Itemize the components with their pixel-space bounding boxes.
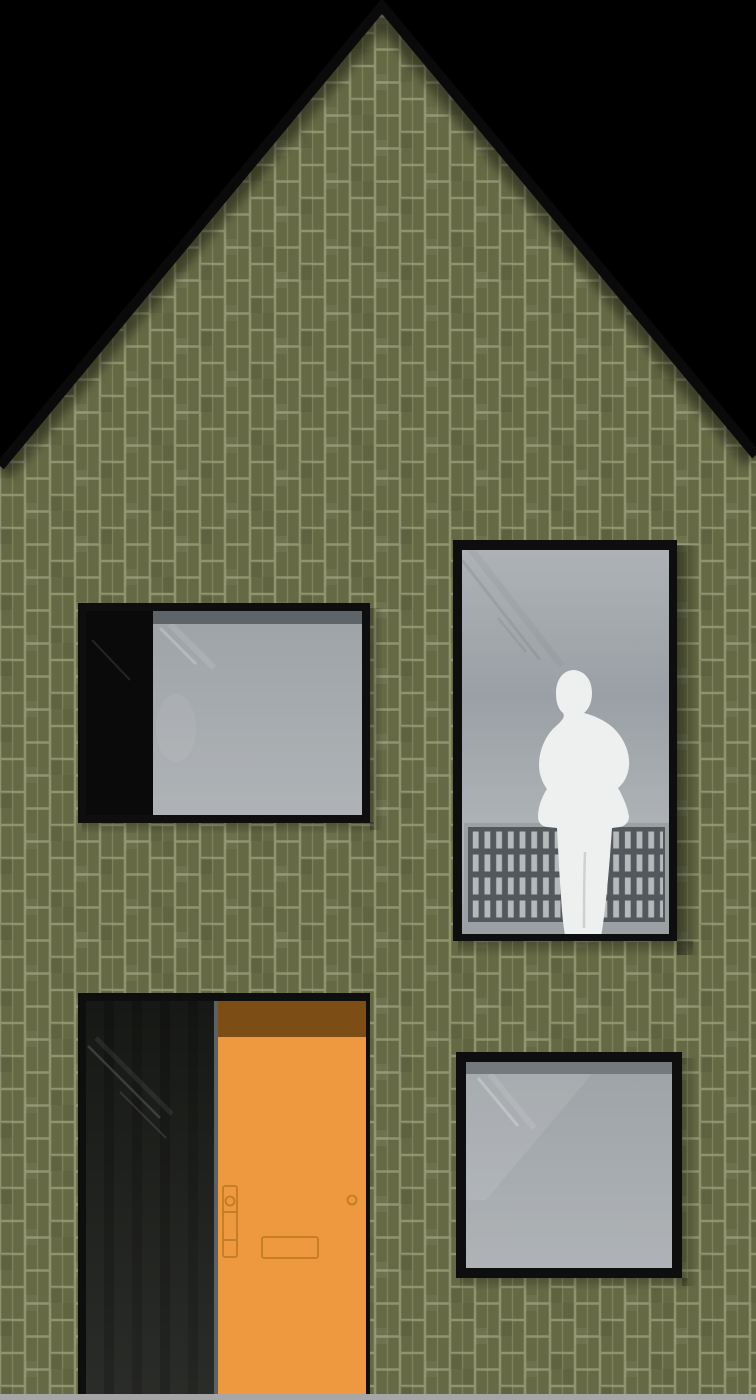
window-upper-left xyxy=(78,603,383,834)
window-upper-right-shadow-right xyxy=(677,545,700,955)
window-upper-right-shadow-bottom xyxy=(458,941,693,957)
window-vent-strip xyxy=(153,611,362,624)
window-upper-left-shadow-right xyxy=(370,608,383,830)
window-black-panel xyxy=(86,611,153,815)
window-upper-right xyxy=(453,540,700,957)
window-upper-left-shadow-bottom xyxy=(82,822,374,834)
house-elevation-canvas xyxy=(0,0,756,1400)
person-leg-crease xyxy=(584,852,585,928)
window-vent-strip xyxy=(466,1062,672,1074)
scene-house-elevation xyxy=(0,0,756,1400)
window-lower-right-shadow-bottom xyxy=(460,1278,688,1291)
front-door xyxy=(218,1001,366,1394)
front-door-assembly xyxy=(78,993,370,1396)
ground-line xyxy=(0,1394,756,1400)
door-recess-shadow-band xyxy=(218,1001,366,1037)
window-lower-right-shadow-right xyxy=(682,1058,698,1286)
door-jamb xyxy=(214,1001,218,1394)
window-lower-right xyxy=(456,1052,698,1291)
